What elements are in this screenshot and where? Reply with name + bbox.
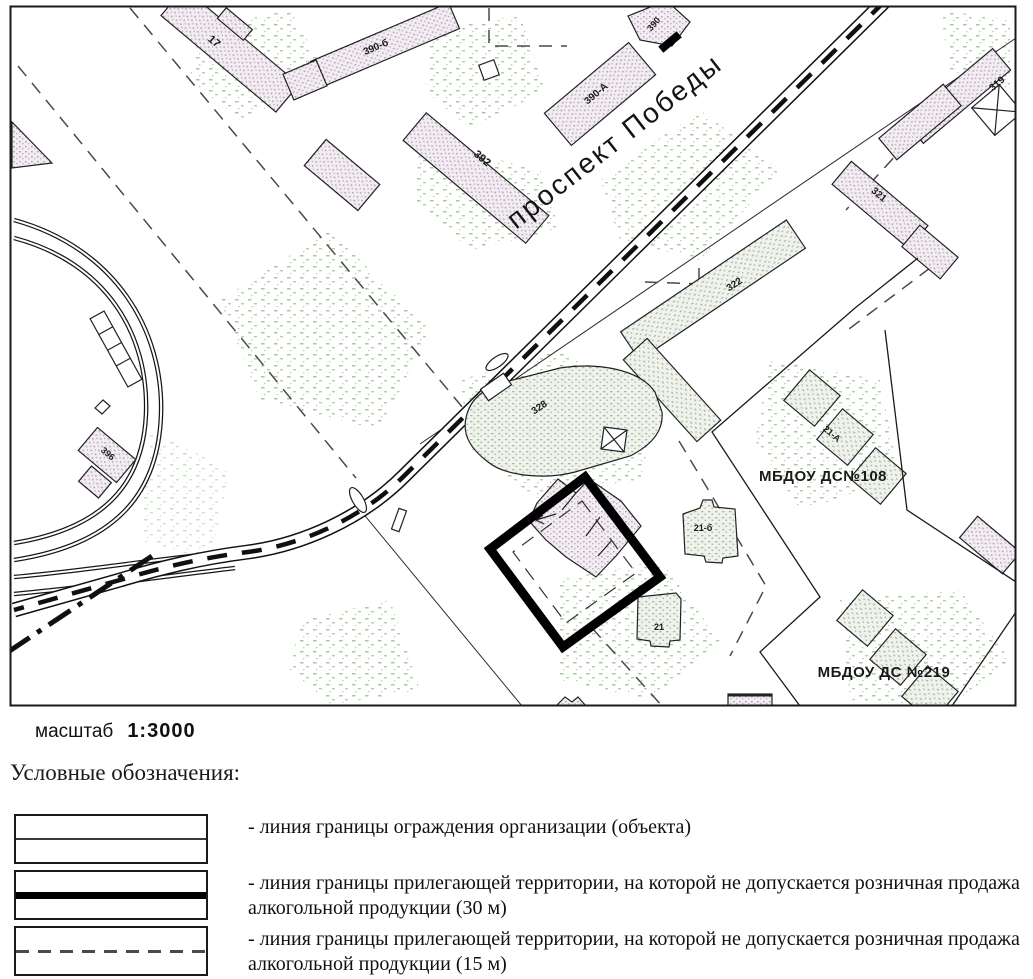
- scale-label: масштаб: [35, 721, 113, 742]
- legend-row-fence: - линия границы ограждения организации (…: [0, 814, 1023, 864]
- legend-row-15m: - линия границы прилегающей территории, …: [0, 926, 1023, 978]
- legend-symbol-thin-solid-line: [14, 814, 208, 864]
- scanned-map-document: проспект Победы 17 390-б 392 390 390-А 3…: [0, 0, 1033, 979]
- scale-note: масштаб1:3000: [35, 720, 196, 743]
- legend-title: Условные обозначения:: [10, 760, 240, 786]
- legend-desc-fence: - линия границы ограждения организации (…: [248, 814, 1023, 840]
- legend-row-30m: - линия границы прилегающей территории, …: [0, 870, 1023, 922]
- dashed-line-sample: [16, 950, 206, 953]
- building-label-21b: 21-б: [694, 523, 713, 533]
- kindergarten-108-label: МБДОУ ДС№108: [759, 468, 887, 485]
- legend-symbol-thick-solid-line: [14, 870, 208, 920]
- thin-line-sample: [16, 838, 206, 840]
- tram-loop: [14, 220, 252, 594]
- legend-symbol-dashed-line: [14, 926, 208, 976]
- map-area: проспект Победы 17 390-б 392 390 390-А 3…: [0, 0, 1033, 712]
- building-label-21: 21: [654, 622, 664, 632]
- kindergarten-219-label: МБДОУ ДС №219: [818, 664, 951, 681]
- legend-desc-15m: - линия границы прилегающей территории, …: [248, 926, 1023, 978]
- legend-desc-30m: - линия границы прилегающей территории, …: [248, 870, 1023, 922]
- scale-value: 1:3000: [127, 720, 195, 742]
- city-map: проспект Победы 17 390-б 392 390 390-А 3…: [0, 0, 1033, 712]
- thick-line-sample: [16, 892, 206, 899]
